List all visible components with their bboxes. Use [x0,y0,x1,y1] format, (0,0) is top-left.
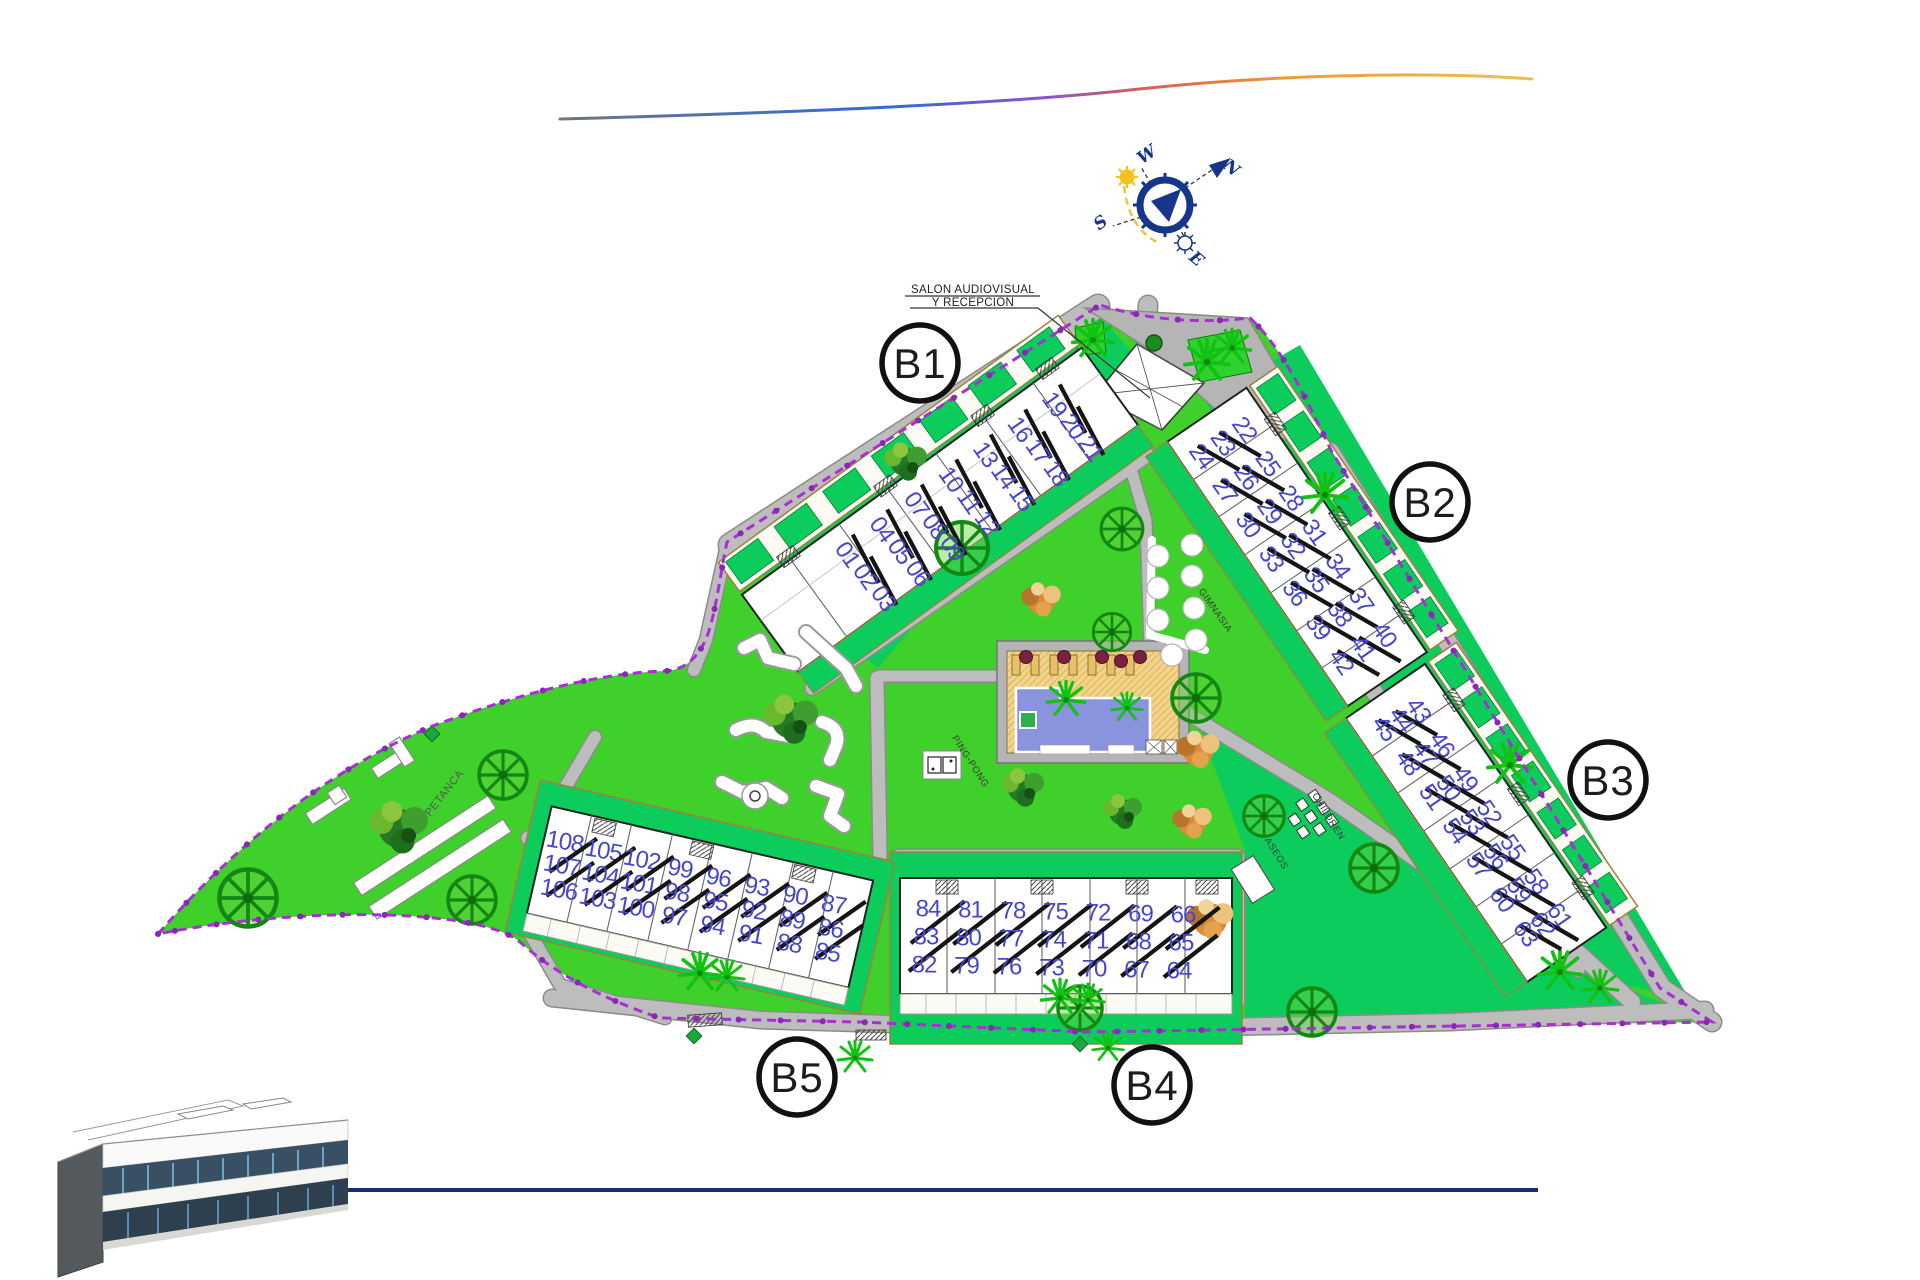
unit-number: 83 [914,923,939,950]
block-label-b5: B5 [759,1039,835,1115]
compass-s: S [1090,211,1112,234]
compass-e: E [1184,247,1208,272]
svg-text:B1: B1 [893,340,946,387]
sun-outline-icon [1174,232,1196,254]
unit-number: 68 [1126,928,1151,955]
unit-number: 78 [1001,897,1026,924]
unit-number: 81 [958,896,983,923]
sun-icon [1116,166,1138,188]
compass-rose: W N S E [1090,140,1245,272]
unit-number: 77 [999,925,1024,952]
unit-number: 65 [1169,929,1194,956]
svg-text:B4: B4 [1125,1062,1178,1109]
block-label-b4: B4 [1114,1047,1190,1123]
unit-number: 82 [912,951,937,978]
unit-number: 72 [1086,899,1111,926]
unit-number: 73 [1039,954,1064,981]
header-swoosh [560,75,1532,119]
site-plan-page: W N S E [0,0,1920,1280]
spa-pool [1020,712,1036,728]
compass-needle [1151,189,1181,222]
block-label-b1: B1 [882,325,958,401]
plaza-tree-icon [1146,335,1162,351]
reception-note-line2: Y RECEPCIÓN [932,296,1014,309]
pergola [1146,740,1177,754]
unit-number: 75 [1043,898,1068,925]
unit-number: 69 [1128,900,1153,927]
unit-number: 67 [1124,956,1149,983]
svg-text:B5: B5 [770,1054,823,1101]
unit-number: 80 [956,924,981,951]
ping-pong-table [923,751,961,779]
unit-number: 70 [1082,955,1107,982]
block-label-b2: B2 [1392,464,1468,540]
unit-number: 84 [916,895,941,922]
svg-text:B3: B3 [1581,757,1634,804]
block-label-b3: B3 [1570,742,1646,818]
reception-note-line1: SALON AUDIOVISUAL [911,284,1035,296]
pool-area [997,641,1189,763]
unit-number: 76 [997,953,1022,980]
unit-number: 66 [1171,901,1196,928]
unit-number: 79 [954,952,979,979]
svg-text:B2: B2 [1403,479,1456,526]
unit-number: 64 [1167,957,1192,984]
unit-number: 71 [1084,927,1109,954]
compass-w: W [1134,140,1163,168]
unit-number: 74 [1041,926,1066,953]
building-render-3d [58,1098,348,1277]
compass-n: N [1218,155,1245,182]
site-plan-svg: W N S E [0,0,1920,1280]
